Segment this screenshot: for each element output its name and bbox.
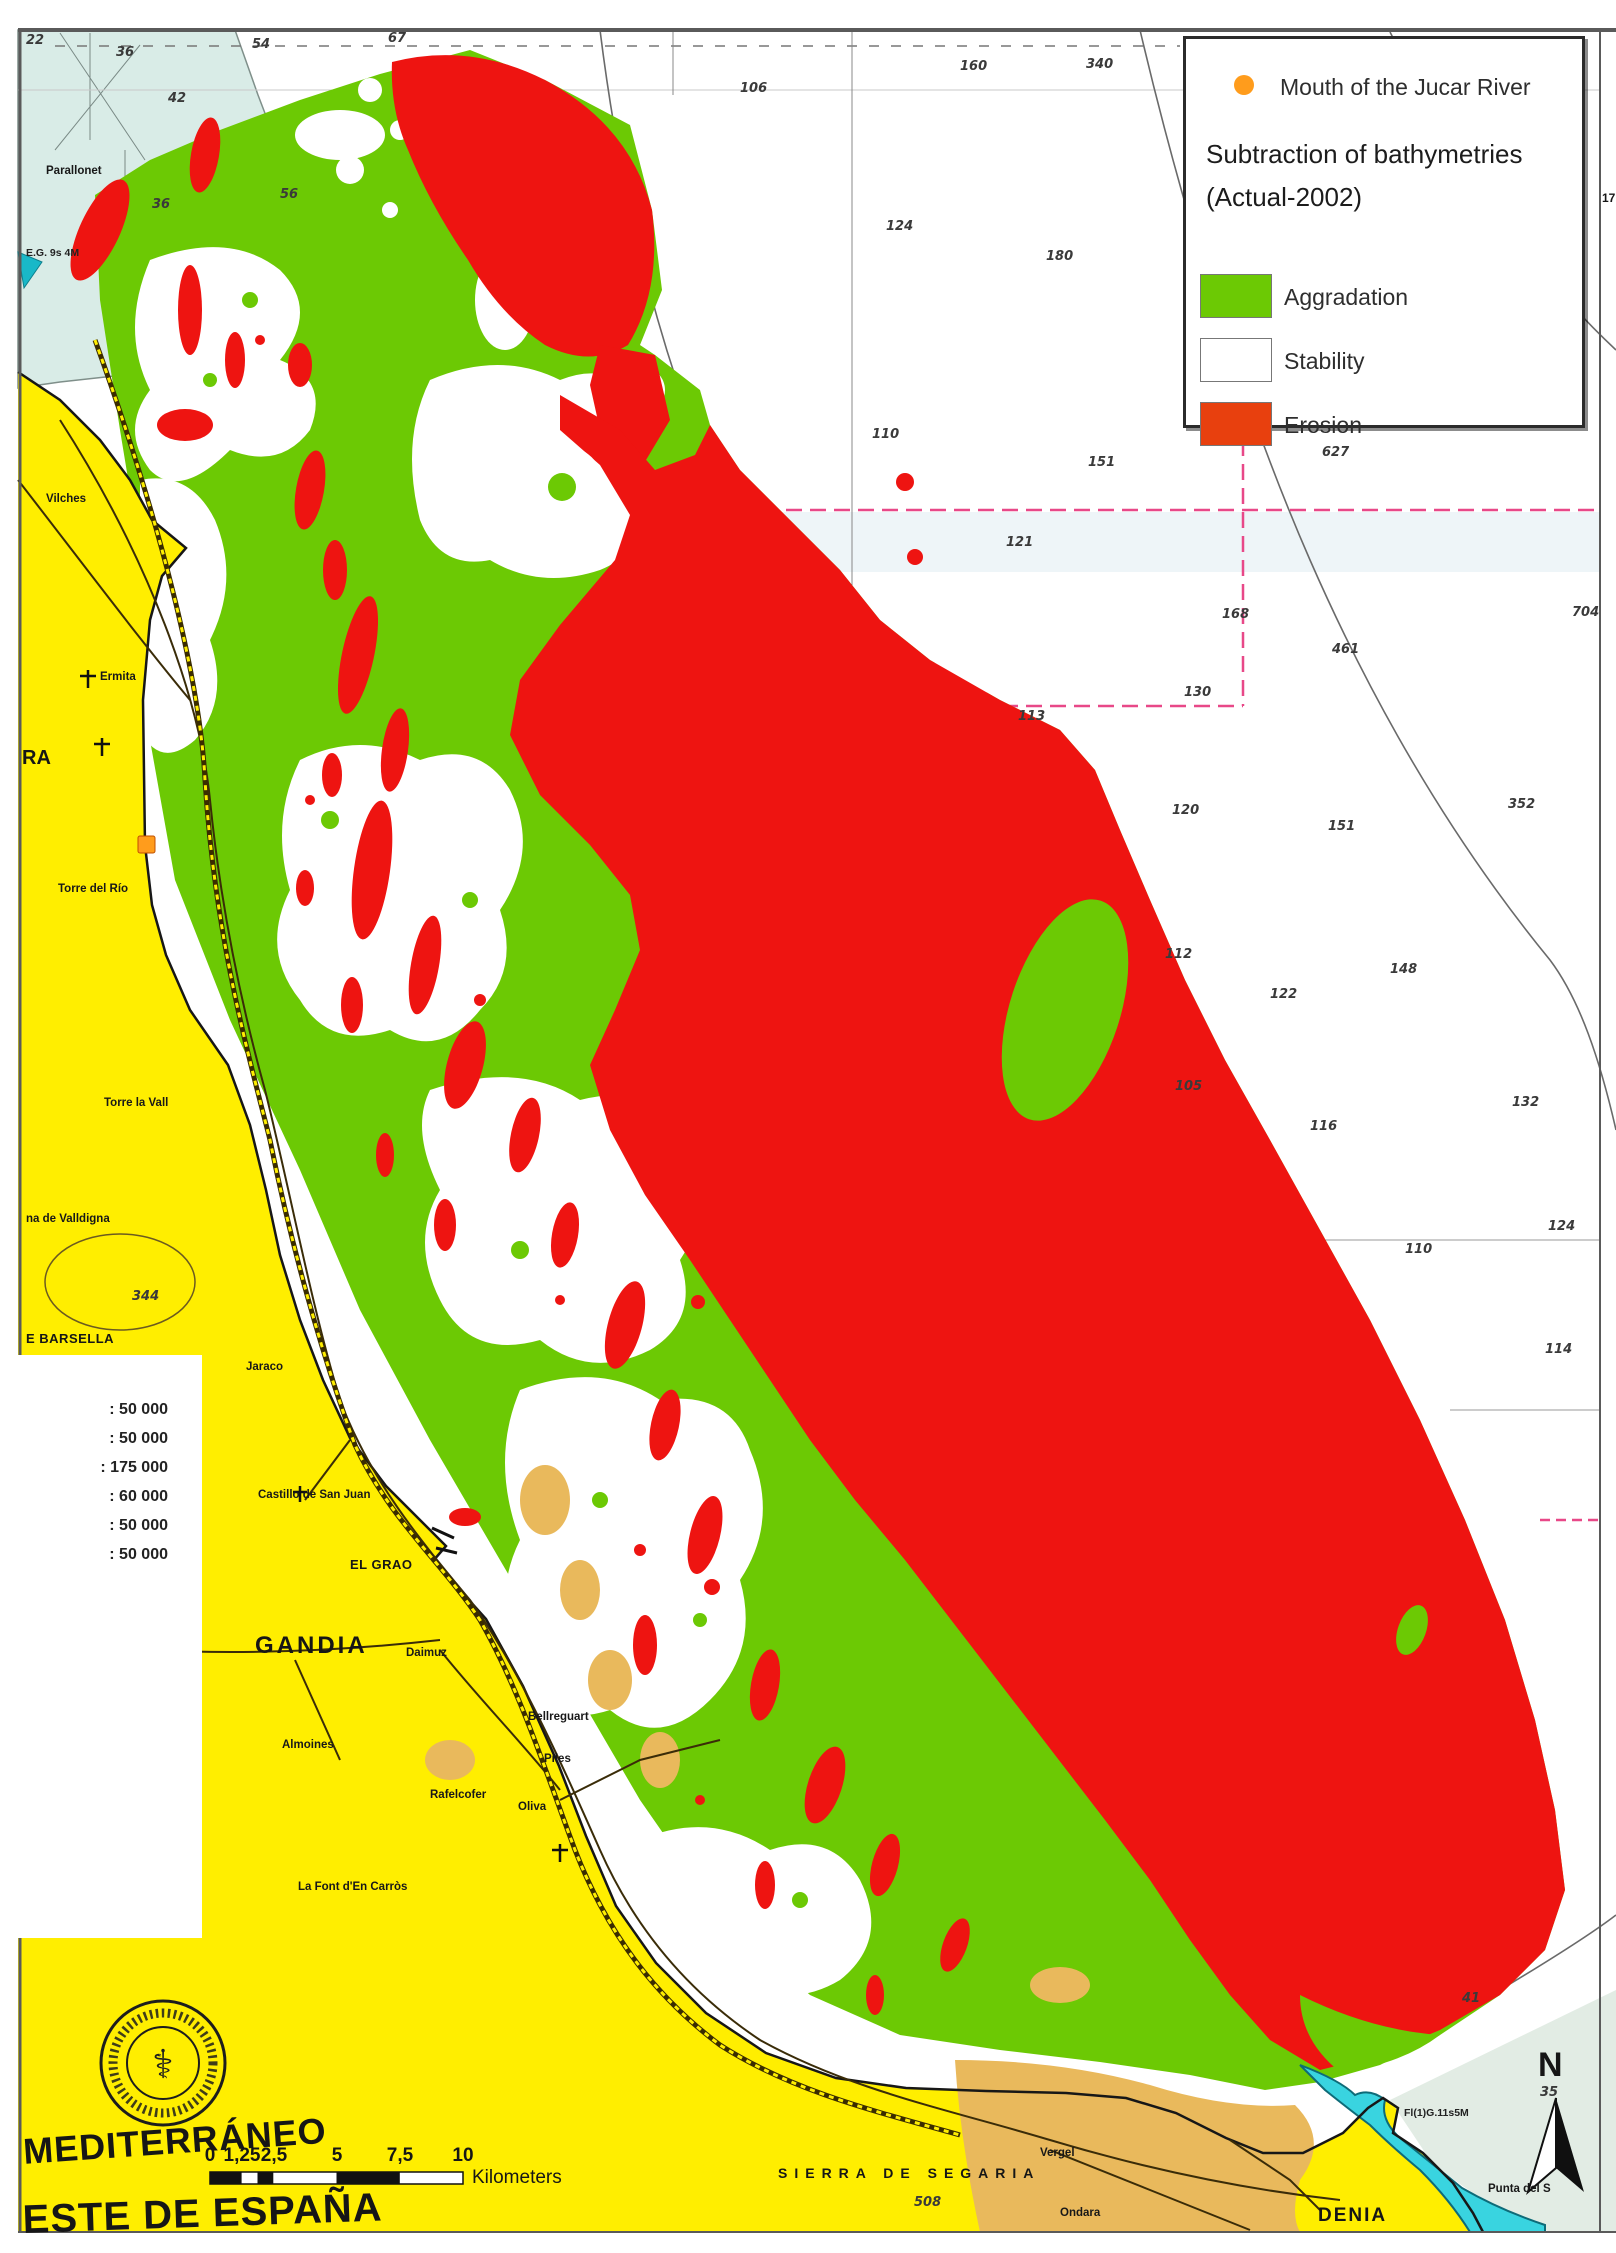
depth-sounding: 461 [1332, 643, 1359, 656]
label-ondara: Ondara [1060, 2208, 1100, 2220]
depth-sounding: 160 [960, 60, 987, 73]
label-rafelcofer: Rafelcofer [430, 1790, 486, 1802]
label-torre-la-vall: Torre la Vall [104, 1098, 168, 1110]
depth-sounding: 54 [252, 38, 270, 51]
label-parallonet: Parallonet [46, 166, 102, 178]
chart-scales-rows: : 50 000: 50 000: 175 000: 60 000: 50 00… [18, 1395, 168, 1569]
depth-sounding: 151 [1328, 820, 1355, 833]
depth-sounding: 124 [1548, 1220, 1575, 1233]
label-piles: Piles [544, 1754, 571, 1766]
label-daimuz: Daimuz [406, 1648, 447, 1660]
depth-sounding: 36 [152, 198, 170, 211]
depth-sounding: 22 [26, 34, 44, 47]
depth-sounding: 352 [1508, 798, 1535, 811]
stability-swatch-icon [1200, 338, 1272, 382]
scalebar-tick-7-5: 7,5 [387, 2146, 413, 2165]
chart-scale-value: : 50 000 [18, 1540, 168, 1569]
depth-sounding: 148 [1390, 963, 1417, 976]
chart-scale-value: : 60 000 [18, 1482, 168, 1511]
label-denia-light: Fl(1)G.11s5M [1404, 2108, 1469, 2119]
label-gandia: GANDIA [255, 1634, 368, 1658]
legend-item-label: Stability [1284, 348, 1365, 375]
label-font-den-carros: La Font d'En Carròs [298, 1882, 407, 1894]
aggradation-swatch-icon [1200, 274, 1272, 318]
depth-sounding: 124 [886, 220, 913, 233]
label-almoines: Almoines [282, 1740, 334, 1752]
label-vilches: Vilches [46, 494, 86, 506]
depth-sounding: 105 [1175, 1080, 1202, 1093]
svg-text:⚕: ⚕ [152, 2042, 174, 2088]
label-ermita: Ermita [100, 672, 136, 684]
legend-item-erosion: Erosion [1186, 402, 1582, 448]
legend-title: Subtraction of bathymetries (Actual-2002… [1206, 133, 1523, 219]
jucar-mouth-marker [138, 836, 155, 853]
legend-item-aggradation: Aggradation [1186, 274, 1582, 320]
overlay-ring-feature [520, 445, 604, 529]
depth-sounding: 121 [1006, 536, 1033, 549]
scalebar-tick-10: 10 [452, 2146, 473, 2165]
label-vergel: Vergel [1040, 2148, 1075, 2160]
legend-title-line1: Subtraction of bathymetries [1206, 133, 1523, 176]
label-cullera-part: RA [22, 748, 51, 768]
depth-sounding: 114 [1545, 1343, 1572, 1356]
depth-sounding: 340 [1086, 58, 1113, 71]
label-sierra-de-segaria: SIERRA DE SEGARIA [778, 2166, 1040, 2180]
legend-title-line2: (Actual-2002) [1206, 176, 1523, 219]
erosion-swatch-icon [1200, 402, 1272, 446]
depth-sounding: 42 [168, 92, 186, 105]
chart-scale-value: : 50 000 [18, 1395, 168, 1424]
label-castillo-san-juan: Castillo de San Juan [258, 1490, 370, 1502]
label-jaraco: Jaraco [246, 1362, 283, 1374]
chart-scale-value: : 175 000 [18, 1453, 168, 1482]
label-bellreguart: Bellreguart [528, 1712, 589, 1724]
chart-scale-value: : 50 000 [18, 1511, 168, 1540]
legend-item-label: Erosion [1284, 412, 1362, 439]
depth-sounding: 110 [1405, 1243, 1432, 1256]
map-figure: ⚕ ParallonetE.G. 9s 4MVilchesErmitaRATor… [0, 0, 1616, 2253]
depth-sounding: 132 [1512, 1096, 1539, 1109]
scale-bar [210, 2172, 463, 2184]
depth-sounding: 116 [1310, 1120, 1337, 1133]
label-valldigna: na de Valldigna [26, 1214, 110, 1226]
chart-scale-value: : 50 000 [18, 1424, 168, 1453]
scalebar-unit: Kilometers [472, 2168, 562, 2187]
label-torre-del-rio: Torre del Río [58, 884, 128, 896]
legend-marker-row: Mouth of the Jucar River [1186, 67, 1582, 103]
label-light-characteristic: E.G. 9s 4M [26, 248, 79, 259]
chart-scales-panel: : 50 000: 50 000: 175 000: 60 000: 50 00… [18, 1355, 202, 1938]
depth-sounding: 106 [740, 82, 767, 95]
label-el-grao: EL GRAO [350, 1558, 413, 1571]
river-mouth-dot-icon [1234, 75, 1254, 95]
tick-17: 17 [1602, 192, 1615, 204]
scalebar-tick-5: 5 [332, 2146, 343, 2165]
depth-sounding: 130 [1184, 686, 1211, 699]
label-denia: DENIA [1318, 2206, 1387, 2225]
legend-marker-label: Mouth of the Jucar River [1280, 74, 1531, 101]
depth-sounding: 180 [1046, 250, 1073, 263]
depth-sounding: 168 [1222, 608, 1249, 621]
legend-item-label: Aggradation [1284, 284, 1408, 311]
depth-sounding: 151 [1088, 456, 1115, 469]
depth-sounding: 67 [388, 32, 406, 45]
legend-item-stability: Stability [1186, 338, 1582, 384]
depth-sounding: 56 [280, 188, 298, 201]
depth-sounding: 122 [1270, 988, 1297, 1001]
label-oliva: Oliva [518, 1802, 546, 1814]
north-letter: N [1538, 2048, 1563, 2082]
depth-sounding: 113 [1018, 710, 1045, 723]
depth-sounding: 35 [1540, 2086, 1558, 2099]
depth-sounding: 110 [872, 428, 899, 441]
depth-sounding: 41 [1462, 1992, 1480, 2005]
depth-sounding: 344 [132, 1290, 159, 1303]
label-barsella: E BARSELLA [26, 1332, 114, 1345]
depth-sounding: 704 [1572, 606, 1599, 619]
depth-sounding: 508 [914, 2196, 941, 2209]
label-punta-del-s: Punta del S [1488, 2184, 1551, 2196]
depth-sounding: 112 [1165, 948, 1192, 961]
legend-panel: Mouth of the Jucar River Subtraction of … [1183, 36, 1585, 428]
depth-sounding: 36 [116, 46, 134, 59]
depth-sounding: 120 [1172, 804, 1199, 817]
